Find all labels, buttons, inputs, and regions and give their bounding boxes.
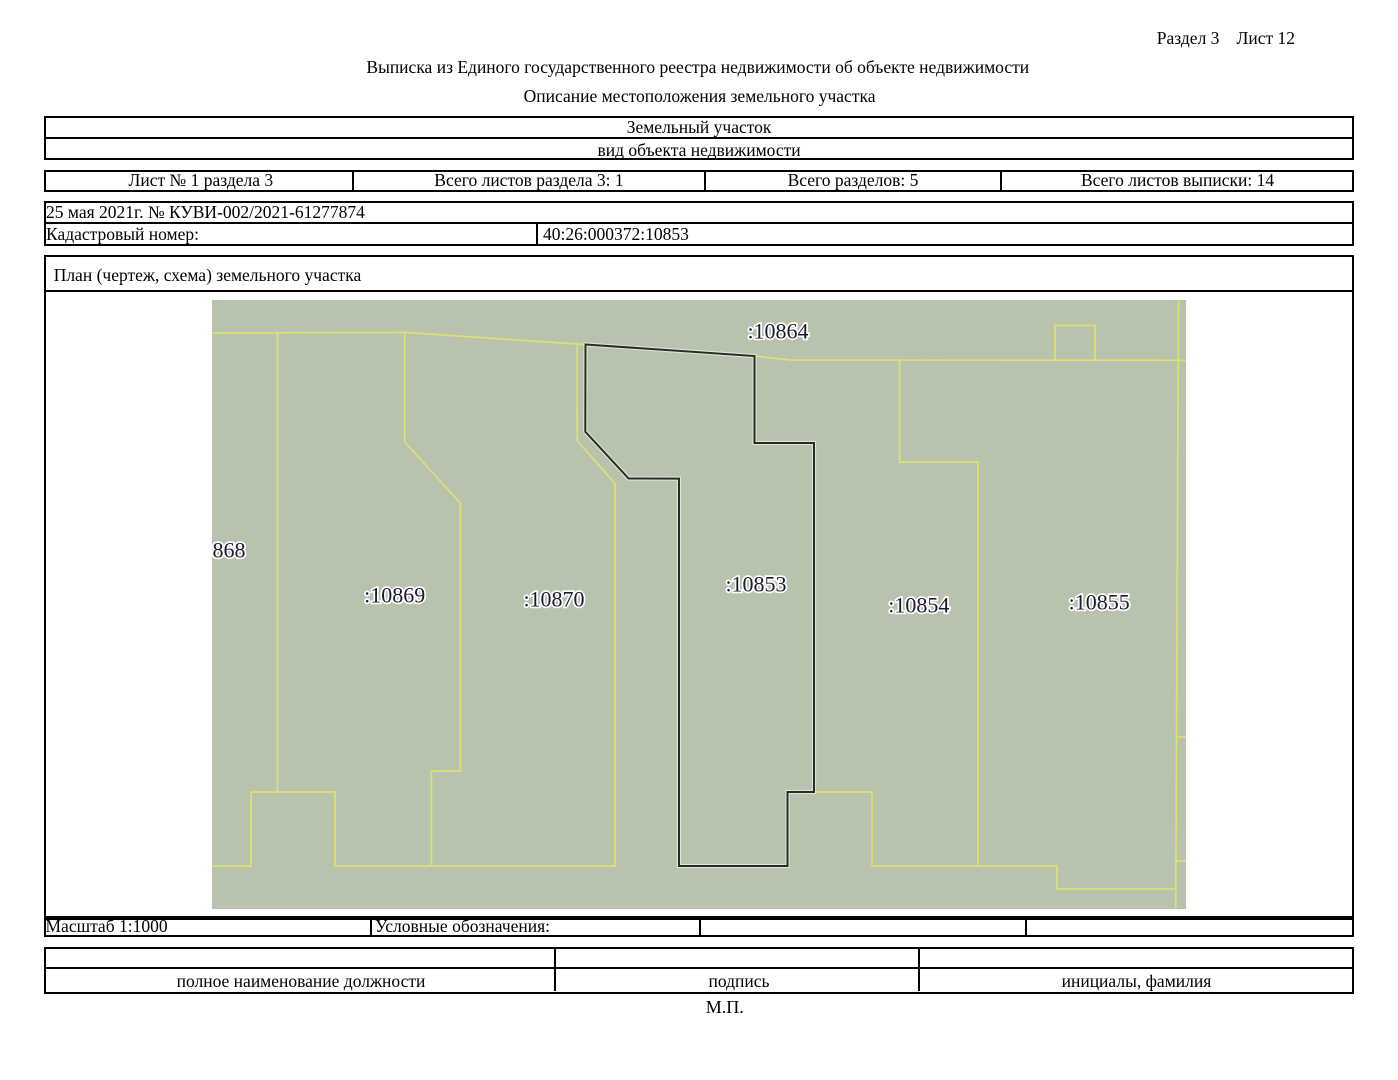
svg-text::10870: :10870 <box>523 587 584 612</box>
svg-text:868: 868 <box>213 537 246 562</box>
svg-text::10869: :10869 <box>364 583 425 608</box>
svg-text::10855: :10855 <box>1069 589 1130 614</box>
svg-text::10853: :10853 <box>725 571 786 596</box>
svg-text::10864: :10864 <box>747 318 808 343</box>
svg-text::10854: :10854 <box>888 593 949 618</box>
